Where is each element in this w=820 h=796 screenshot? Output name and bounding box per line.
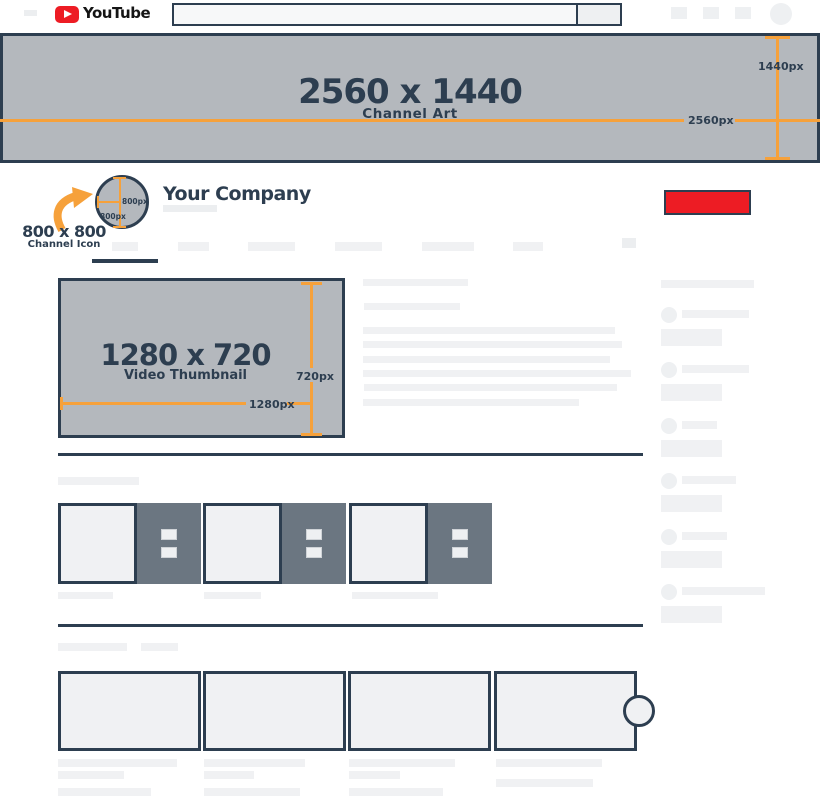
card-caption-placeholder	[349, 788, 443, 796]
header-icon-2[interactable]	[703, 7, 719, 19]
video-thumb-placeholder	[349, 503, 428, 584]
card-caption-placeholder	[496, 779, 593, 787]
sidebar-avatar[interactable]	[661, 529, 677, 545]
text-placeholder	[363, 399, 579, 406]
video-thumb-placeholder	[203, 503, 282, 584]
search-input[interactable]	[174, 5, 576, 24]
banner-width-line-left	[0, 119, 684, 122]
card-caption-placeholder	[349, 771, 400, 779]
text-placeholder	[363, 370, 631, 377]
banner-width-label: 2560px	[688, 114, 734, 127]
card-caption-placeholder	[204, 592, 261, 599]
thumb-height-cap-bottom	[301, 433, 322, 436]
thumb-width-cap-left	[60, 397, 63, 410]
thumb-width-line-left	[61, 402, 246, 405]
icon-size-subtitle: Channel Icon	[18, 239, 110, 250]
youtube-play-icon	[55, 6, 79, 23]
sidebar-line[interactable]	[682, 532, 727, 540]
youtube-channel-size-guide: YouTube 2560 x 1440 Channel Art 2560px 1…	[0, 0, 820, 796]
card-caption-placeholder	[204, 771, 254, 779]
section-title-placeholder	[58, 643, 127, 651]
list-item-icon	[306, 529, 322, 540]
video-card[interactable]	[348, 671, 491, 751]
banner-height-cap-bottom	[765, 157, 790, 160]
tab-placeholder[interactable]	[112, 242, 138, 251]
thumb-height-line-bottom	[310, 382, 313, 435]
sidebar-avatar[interactable]	[661, 362, 677, 378]
section-divider	[58, 624, 643, 627]
card-caption-placeholder	[204, 788, 300, 796]
icon-height-cap-bottom	[113, 226, 126, 228]
sidebar-line[interactable]	[682, 310, 749, 318]
video-card[interactable]	[494, 671, 637, 751]
video-card[interactable]	[349, 503, 492, 584]
section-divider	[58, 453, 643, 456]
video-list-panel	[282, 503, 346, 584]
sidebar-line[interactable]	[682, 365, 749, 373]
carousel-next-button[interactable]	[623, 695, 655, 727]
sidebar-block[interactable]	[661, 551, 722, 568]
video-list-panel	[428, 503, 492, 584]
avatar[interactable]	[770, 3, 792, 25]
text-placeholder	[364, 384, 617, 391]
video-card[interactable]	[58, 671, 201, 751]
video-card[interactable]	[203, 503, 346, 584]
banner-height-line	[776, 36, 779, 160]
text-placeholder	[363, 341, 622, 348]
card-caption-placeholder	[58, 771, 124, 779]
thumb-width-label: 1280px	[249, 398, 295, 411]
video-title-placeholder	[363, 279, 468, 286]
subscribe-button[interactable]	[664, 190, 751, 215]
icon-width-line	[98, 201, 120, 203]
card-caption-placeholder	[58, 788, 151, 796]
youtube-wordmark: YouTube	[83, 4, 150, 22]
subscriber-count-placeholder	[163, 205, 217, 212]
sidebar-block[interactable]	[661, 329, 722, 346]
card-caption-placeholder	[204, 759, 305, 767]
sidebar-avatar[interactable]	[661, 584, 677, 600]
list-item-icon	[306, 547, 322, 558]
sidebar-block[interactable]	[661, 384, 722, 401]
tab-search-icon[interactable]	[622, 238, 636, 248]
sidebar-line[interactable]	[682, 587, 765, 595]
sidebar-avatar[interactable]	[661, 473, 677, 489]
video-card[interactable]	[58, 503, 201, 584]
icon-height-label: 800px	[100, 212, 126, 221]
list-item-icon	[452, 529, 468, 540]
video-card[interactable]	[203, 671, 346, 751]
header-icon-1[interactable]	[671, 7, 687, 19]
menu-icon[interactable]	[24, 10, 37, 16]
list-item-icon	[452, 547, 468, 558]
tab-placeholder[interactable]	[248, 242, 295, 251]
sidebar-avatar[interactable]	[661, 418, 677, 434]
active-tab-underline	[92, 259, 158, 263]
section-subtitle-placeholder	[141, 643, 178, 651]
list-item-icon	[161, 529, 177, 540]
sidebar-line[interactable]	[682, 476, 736, 484]
thumb-height-line-top	[310, 283, 313, 368]
search-bar[interactable]	[172, 3, 622, 26]
section-title-placeholder	[58, 477, 139, 485]
tab-placeholder[interactable]	[178, 242, 209, 251]
video-meta-placeholder	[364, 303, 460, 310]
banner-height-label: 1440px	[758, 60, 804, 73]
card-caption-placeholder	[349, 759, 455, 767]
sidebar-block[interactable]	[661, 495, 722, 512]
search-button[interactable]	[576, 5, 620, 24]
sidebar-block[interactable]	[661, 606, 722, 623]
list-item-icon	[161, 547, 177, 558]
video-list-panel	[137, 503, 201, 584]
banner-height-cap-top	[765, 36, 790, 39]
channel-name: Your Company	[163, 183, 311, 205]
icon-width-cap-left	[97, 196, 99, 208]
tab-placeholder[interactable]	[422, 242, 474, 251]
thumb-height-cap-top	[301, 282, 322, 285]
card-caption-placeholder	[58, 592, 113, 599]
text-placeholder	[363, 356, 610, 363]
tab-placeholder[interactable]	[335, 242, 382, 251]
thumbnail-size-subtitle: Video Thumbnail	[58, 368, 313, 383]
header-icon-3[interactable]	[735, 7, 751, 19]
sidebar-block[interactable]	[661, 440, 722, 457]
icon-height-cap-top	[113, 177, 126, 179]
sidebar-line[interactable]	[682, 421, 717, 429]
thumb-height-label: 720px	[296, 370, 334, 383]
video-thumb-placeholder	[58, 503, 137, 584]
card-caption-placeholder	[352, 592, 438, 599]
icon-width-label: 800px	[122, 197, 148, 206]
thumbnail-size-title: 1280 x 720	[58, 338, 313, 372]
text-placeholder	[363, 327, 615, 334]
sidebar-header-placeholder	[661, 280, 754, 288]
card-caption-placeholder	[58, 759, 177, 767]
sidebar-avatar[interactable]	[661, 307, 677, 323]
card-caption-placeholder	[496, 759, 602, 767]
tab-placeholder[interactable]	[513, 242, 543, 251]
play-triangle-icon	[64, 10, 72, 18]
